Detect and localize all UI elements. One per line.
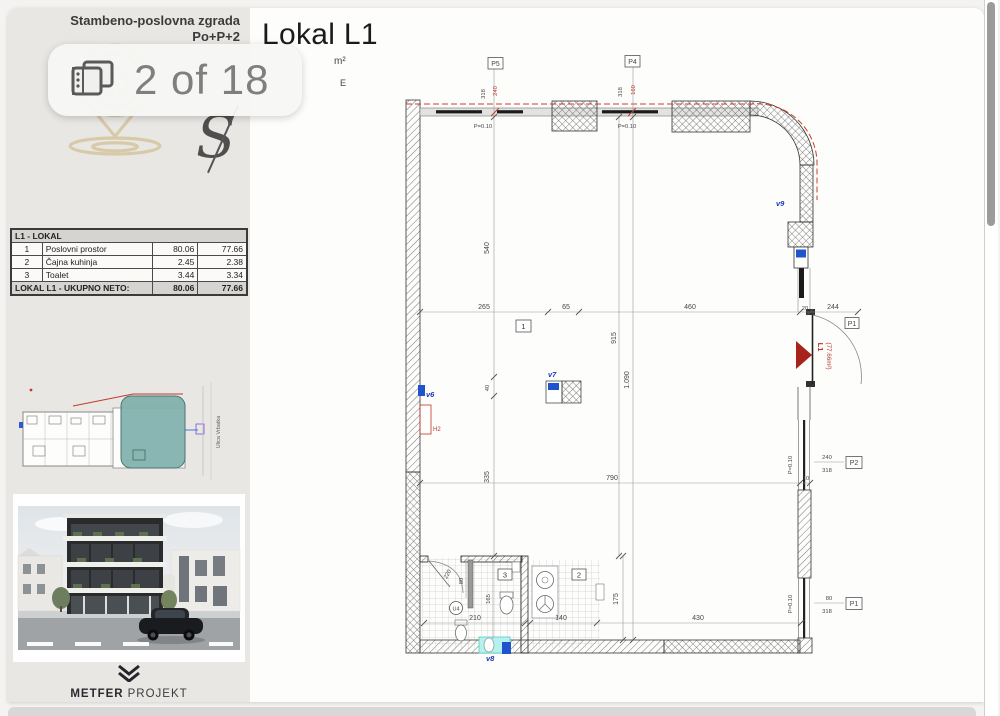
table-row: 3 Toalet 3.44 3.34 [11, 269, 247, 282]
table-row: 1 Poslovni prostor 80.06 77.66 [11, 243, 247, 256]
image-counter-badge[interactable]: 2 of 18 [48, 44, 302, 116]
overview-floorplan: Ulica Vrbatka [13, 380, 245, 482]
area-table-header: L1 - LOKAL [11, 229, 247, 243]
total-label: LOKAL L1 - UKUPNO NETO: [11, 282, 153, 296]
lokal-highlight [121, 396, 185, 468]
table-row: 2 Čajna kuhinja 2.45 2.38 [11, 256, 247, 269]
row-num: 2 [11, 256, 42, 269]
title-subtext-fragment: E [340, 78, 346, 88]
logo-name-light: PROJEKT [128, 688, 188, 700]
gallery-icon [68, 58, 118, 102]
total-bruto: 80.06 [153, 282, 198, 296]
row-bruto: 80.06 [153, 243, 198, 256]
logo-name-bold: METFER [70, 688, 123, 700]
company-logo: METFERPROJEKT [8, 660, 250, 702]
street-label: Ulica Vrbatka [216, 415, 222, 448]
viewer-stage: Stambeno-poslovna zgrada Po+P+2 S [0, 0, 1000, 716]
title-subtext-fragment: m² [334, 56, 346, 67]
scrollbar-thumb[interactable] [987, 2, 995, 226]
area-table-title: L1 - LOKAL [11, 229, 247, 243]
total-neto: 77.66 [198, 282, 247, 296]
row-name: Čajna kuhinja [42, 256, 153, 269]
row-bruto: 2.45 [153, 256, 198, 269]
row-name: Poslovni prostor [42, 243, 153, 256]
next-page-preview [8, 707, 976, 716]
image-counter-label: 2 of 18 [134, 56, 269, 104]
row-num: 1 [11, 243, 42, 256]
scrollbar-track[interactable] [984, 0, 998, 716]
metfer-m-icon [115, 660, 143, 682]
row-name: Toalet [42, 269, 153, 282]
row-bruto: 3.44 [153, 269, 198, 282]
row-neto: 3.34 [198, 269, 247, 282]
row-neto: 77.66 [198, 243, 247, 256]
building-rendering [13, 494, 245, 662]
project-title: Stambeno-poslovna zgrada [70, 13, 240, 29]
row-neto: 2.38 [198, 256, 247, 269]
s-watermark: S [196, 108, 236, 166]
table-total-row: LOKAL L1 - UKUPNO NETO: 80.06 77.66 [11, 282, 247, 296]
area-table: L1 - LOKAL 1 Poslovni prostor 80.06 77.6… [10, 228, 248, 296]
row-num: 3 [11, 269, 42, 282]
